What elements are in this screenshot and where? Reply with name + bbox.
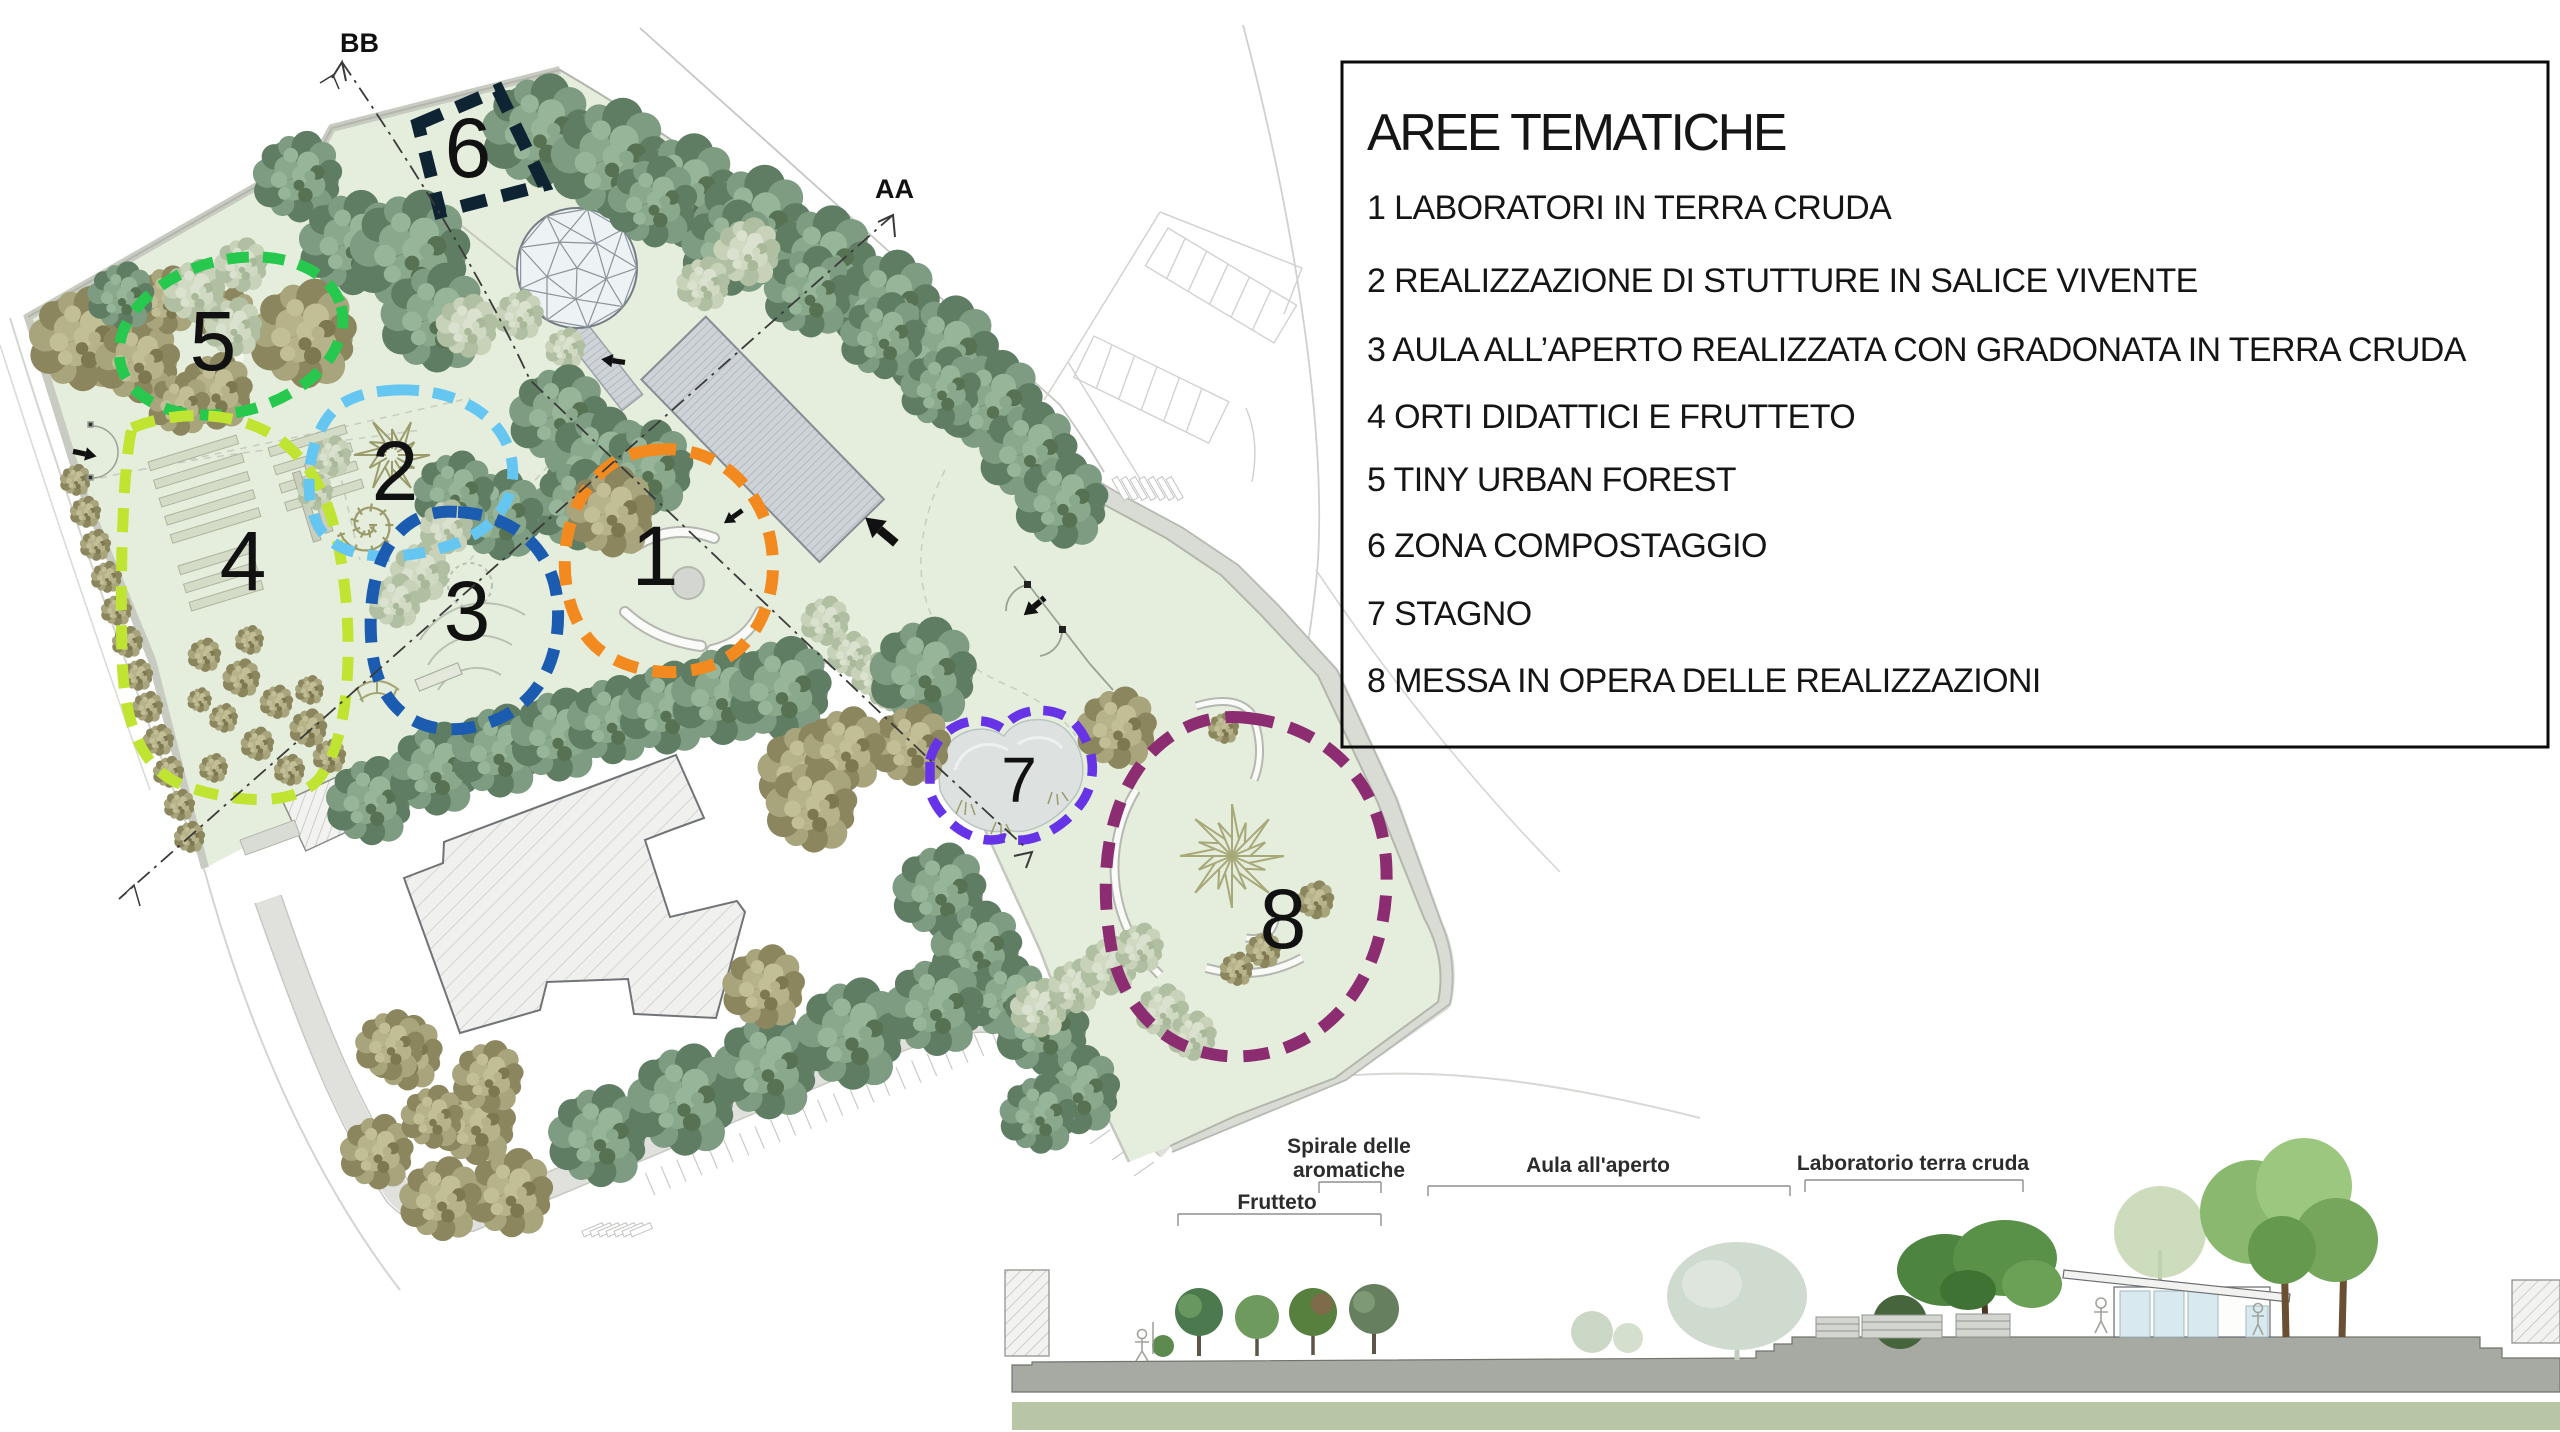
svg-text:3 AULA ALL’APERTO REALIZZATA C: 3 AULA ALL’APERTO REALIZZATA CON GRADONA…	[1367, 331, 2467, 369]
svg-text:AREE TEMATICHE: AREE TEMATICHE	[1367, 104, 1786, 162]
svg-text:2: 2	[372, 424, 419, 518]
svg-text:6 ZONA COMPOSTAGGIO: 6 ZONA COMPOSTAGGIO	[1367, 527, 1767, 565]
svg-text:6: 6	[445, 101, 492, 195]
svg-text:Aula all'aperto: Aula all'aperto	[1526, 1154, 1670, 1177]
svg-text:1 LABORATORI IN TERRA CRUDA: 1 LABORATORI IN TERRA CRUDA	[1367, 189, 1892, 227]
svg-text:Laboratorio terra cruda: Laboratorio terra cruda	[1797, 1152, 2030, 1175]
svg-text:Spirale delle: Spirale delle	[1287, 1135, 1411, 1158]
svg-text:1: 1	[632, 509, 679, 603]
svg-text:Frutteto: Frutteto	[1237, 1191, 1316, 1214]
svg-text:5: 5	[190, 294, 237, 388]
svg-text:7 STAGNO: 7 STAGNO	[1367, 595, 1532, 633]
svg-text:8: 8	[1260, 872, 1307, 966]
svg-text:3: 3	[444, 564, 491, 658]
svg-text:4 ORTI DIDATTICI E FRUTTETO: 4 ORTI DIDATTICI E FRUTTETO	[1367, 398, 1855, 436]
svg-text:2 REALIZZAZIONE DI STUTTURE IN: 2 REALIZZAZIONE DI STUTTURE IN SALICE VI…	[1367, 262, 2198, 300]
svg-text:4: 4	[220, 514, 267, 608]
svg-text:BB: BB	[340, 28, 379, 58]
svg-text:7: 7	[1001, 744, 1037, 816]
svg-text:aromatiche: aromatiche	[1293, 1159, 1405, 1182]
svg-text:AA: AA	[875, 174, 914, 204]
svg-text:8 MESSA IN OPERA DELLE REALIZZ: 8 MESSA IN OPERA DELLE REALIZZAZIONI	[1367, 662, 2041, 700]
svg-text:5 TINY URBAN FOREST: 5 TINY URBAN FOREST	[1367, 461, 1736, 499]
